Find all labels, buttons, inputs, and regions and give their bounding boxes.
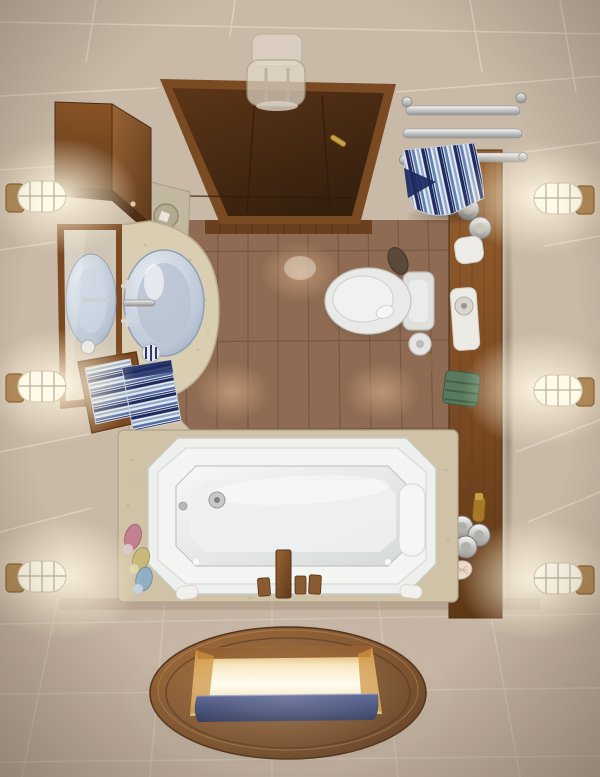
bathroom-top-view-render <box>0 0 600 777</box>
scene-canvas <box>0 0 600 777</box>
vignette-overlay <box>0 0 600 777</box>
